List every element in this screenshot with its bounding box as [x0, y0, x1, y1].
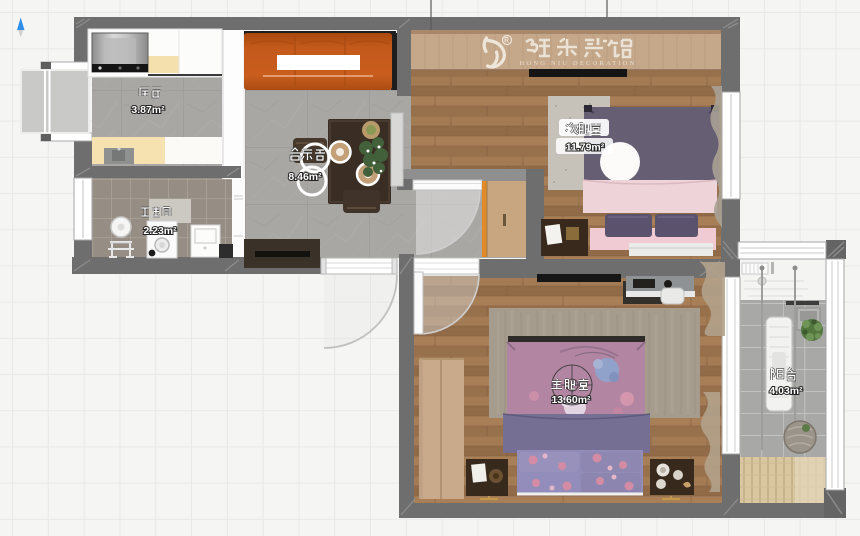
- svg-text:3.87m²: 3.87m²: [131, 104, 165, 116]
- svg-text:13.60m²: 13.60m²: [551, 394, 591, 406]
- svg-text:HONG NIU DECORATION: HONG NIU DECORATION: [520, 60, 637, 67]
- svg-text:2.23m²: 2.23m²: [143, 225, 177, 237]
- svg-text:8.46m²: 8.46m²: [288, 171, 322, 183]
- svg-text:11.79m²: 11.79m²: [566, 142, 605, 154]
- svg-text:4.03m²: 4.03m²: [769, 385, 803, 397]
